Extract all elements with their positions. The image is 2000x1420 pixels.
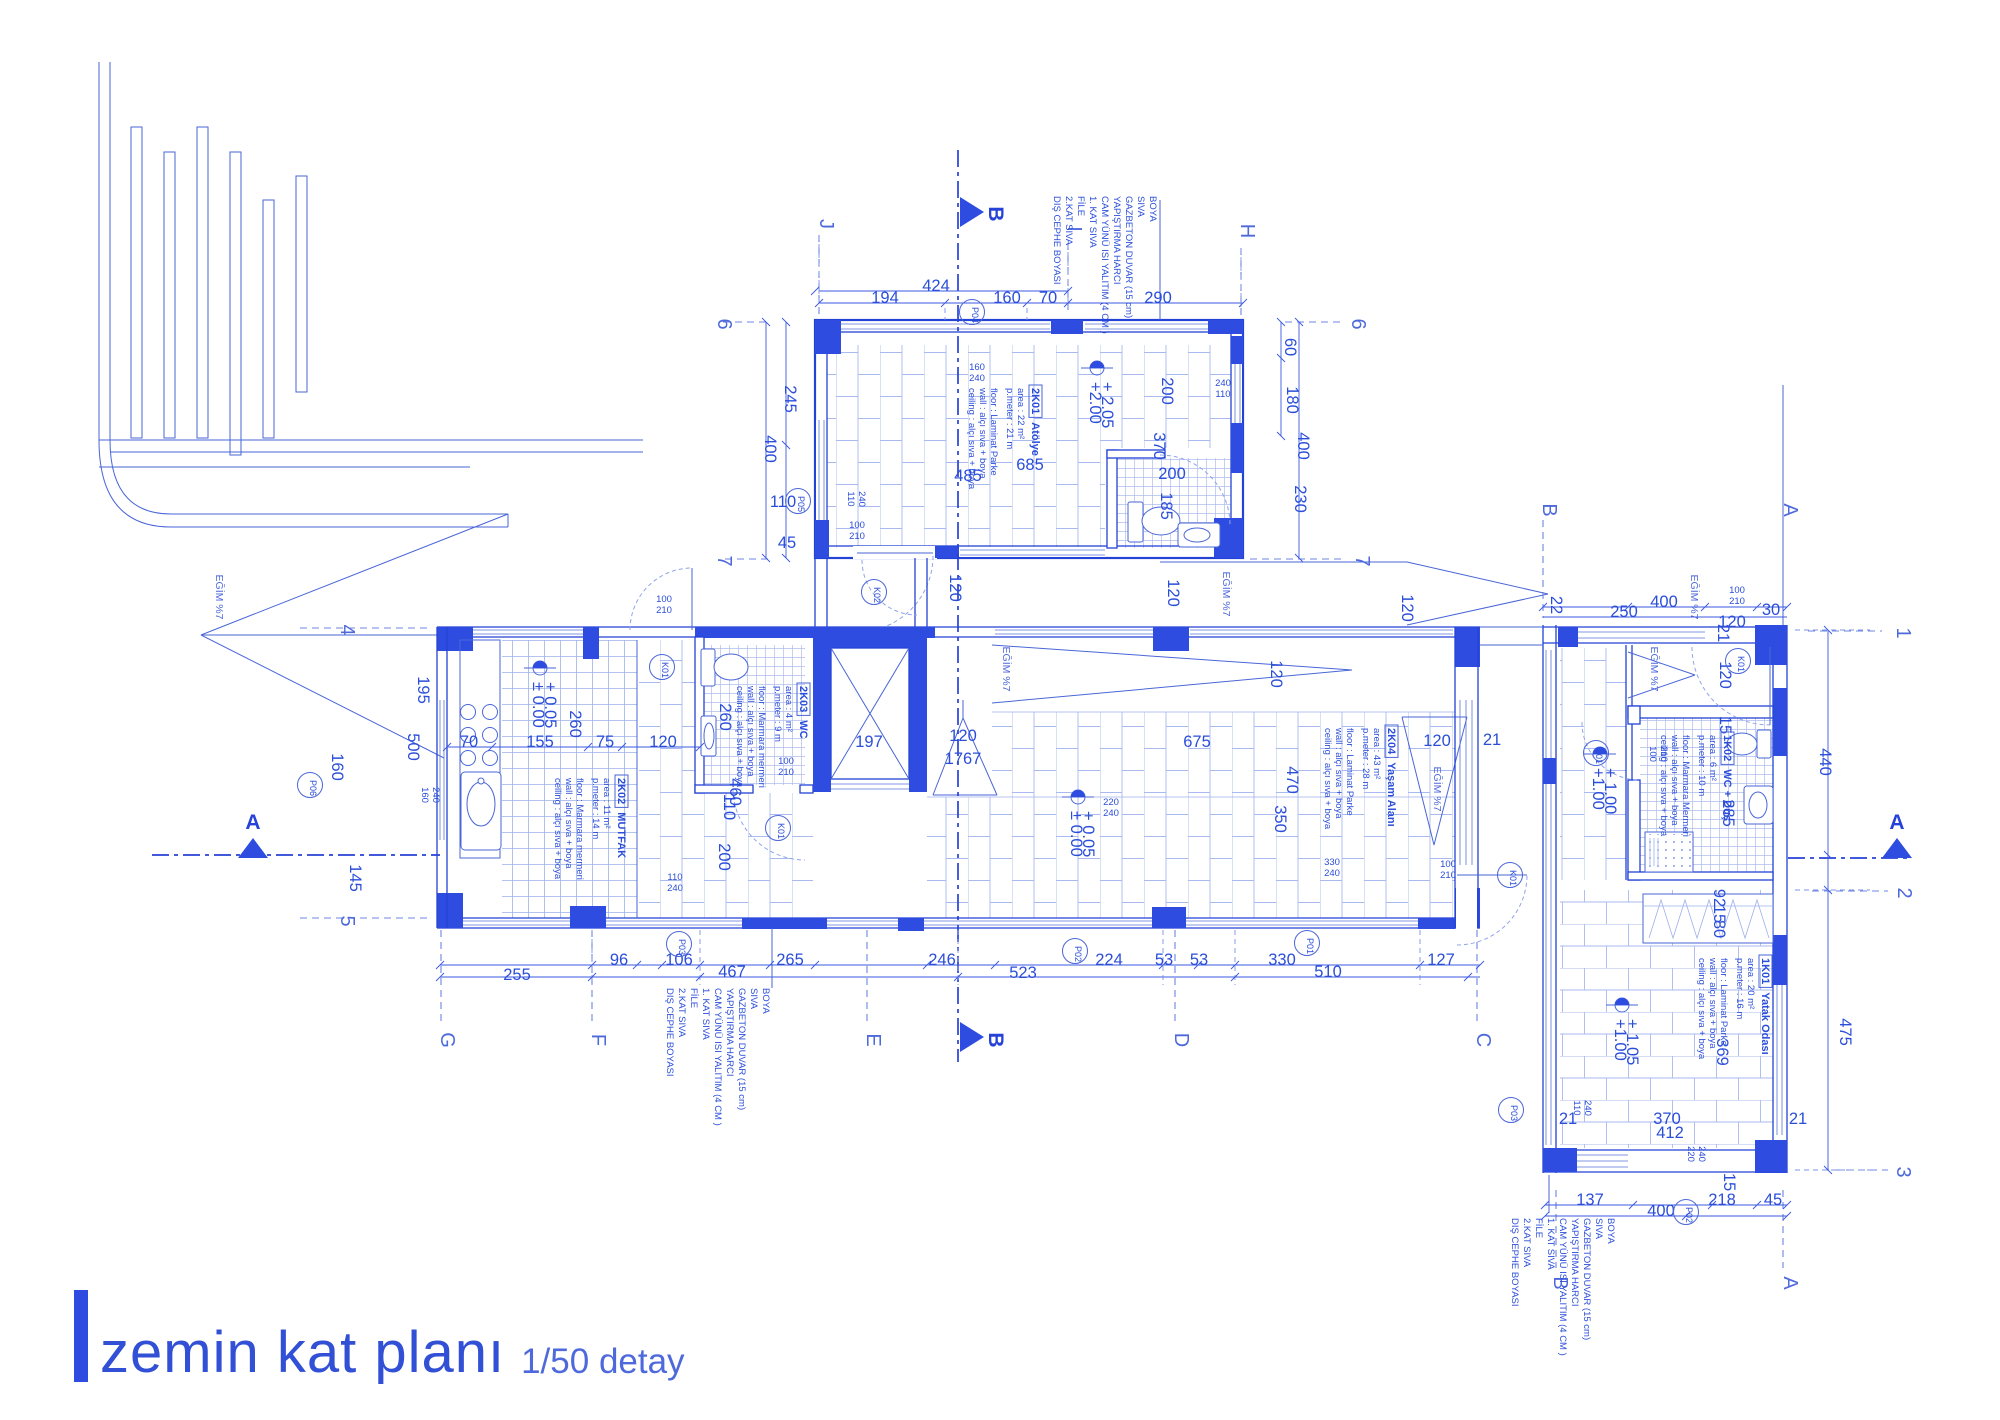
dimension-label: 500: [404, 733, 422, 761]
wall-note-line: GAZBETON DUVAR (15 cm): [1123, 196, 1134, 318]
wall-note-line: CAM YÜNÜ ISI YALITIM (4 CM ): [712, 988, 723, 1126]
wall-note-line: 1. KAT SIVA: [1545, 1218, 1556, 1270]
room-attr-line: p.meter : 28 m: [1360, 728, 1371, 789]
dimension-label: 200: [1158, 465, 1186, 483]
floor-plan-canvas: 4241941607029048568520037020018524540011…: [0, 0, 2000, 1420]
dimension-label: 240: [667, 883, 683, 894]
dimension-label: 224: [1095, 951, 1123, 969]
dimension-label: 194: [871, 289, 899, 307]
grid-label: H: [1236, 224, 1258, 238]
grid-label: G: [436, 1032, 458, 1048]
wall-note-line: 2.KAT SIVA: [676, 988, 687, 1038]
dimension-label: 160: [419, 787, 430, 803]
wall-note-line: FİLE: [688, 988, 699, 1008]
dimension-label: 370: [1150, 432, 1168, 460]
dimension-label: 330: [1324, 857, 1340, 868]
dimension-label: 45: [1764, 1191, 1782, 1209]
grid-label: 3: [1892, 1166, 1914, 1177]
dimension-label: 21: [1789, 1110, 1807, 1128]
grid-label: E: [862, 1033, 884, 1046]
opening-tag: K02: [872, 587, 882, 603]
opening-tag: K01: [660, 662, 670, 678]
room-attr-line: wall : alçı sıva + boya: [977, 387, 988, 479]
section-label: A: [245, 811, 260, 834]
grid-label: A: [1779, 503, 1801, 517]
room-code-name: 1K02WC + Duş: [1721, 735, 1733, 821]
dimension-label: 70: [460, 733, 478, 751]
grid-label: A: [1779, 1276, 1801, 1290]
grid-label: B: [1538, 503, 1560, 516]
dimension-label: 240: [1215, 378, 1231, 389]
dimension-label: 220: [1103, 797, 1119, 808]
room-code-name: 2K01Atölye: [1029, 388, 1041, 456]
wall-note-line: GAZBETON DUVAR (15 cm): [736, 988, 747, 1110]
dimension-label: 246: [928, 951, 956, 969]
dimension-label: 330: [1268, 951, 1296, 969]
dimension-label: 15: [1720, 1173, 1738, 1191]
dimension-label: 250: [1610, 603, 1638, 621]
grid-label: 5: [336, 915, 358, 926]
wall-note-line: 2.KAT SIVA: [1063, 196, 1074, 246]
section-b-arrow-bottom: [960, 1022, 984, 1052]
wall-note-line: DIŞ CEPHE BOYASI: [1051, 196, 1062, 285]
room-attr-line: floor : Laminat Parke: [1718, 958, 1729, 1046]
opening-tag: P02: [1684, 1207, 1694, 1223]
wall-note-line: SIVA: [748, 988, 759, 1010]
opening-tag: P01: [1305, 938, 1315, 954]
wall-note-line: BOYA: [760, 988, 771, 1014]
dimension-label: 100: [1647, 746, 1658, 762]
slope-label: EĞİM %7: [1688, 575, 1701, 620]
wall-note-line: DIŞ CEPHE BOYASI: [1509, 1218, 1520, 1307]
opening-tag: P06: [308, 780, 318, 796]
opening-tag: K01: [1508, 870, 1518, 886]
section-a-arrow-left: [238, 838, 268, 858]
dimension-label: 400: [1647, 1202, 1675, 1220]
dimension-label: 523: [1009, 964, 1037, 982]
dimension-label: 100: [1440, 859, 1456, 870]
room-attr-line: floor : Marmara mermeri: [756, 686, 767, 788]
dimension-label: 240: [969, 373, 985, 384]
dimension-label: 1767: [945, 750, 982, 768]
wall-note-line: YAPIŞTIRMA HARCI: [1569, 1218, 1580, 1307]
grid-label: 6: [1347, 318, 1369, 329]
room-attr-line: p.meter : 14 m: [590, 778, 601, 839]
room-attr-line: floor : Marmara mermeri: [574, 778, 585, 880]
wall-note-line: FİLE: [1533, 1218, 1544, 1238]
dimension-label: 110: [720, 794, 738, 820]
wall-note-line: BOYA: [1147, 196, 1158, 222]
dimension-label: 100: [849, 520, 865, 531]
dimension-label: 120: [949, 727, 977, 745]
opening-tag: K01: [1736, 656, 1746, 672]
room-attr-line: ceiling : alçı sıva + boya: [734, 686, 745, 788]
wall-note-line: FİLE: [1075, 196, 1086, 216]
room-attr-line: ceiling : alçı sıva + boya: [1322, 728, 1333, 830]
floor-plan-page: 4241941607029048568520037020018524540011…: [0, 0, 2000, 1420]
room-attr-line: ceiling : alçı sıva + boya: [1658, 735, 1669, 837]
section-a-arrow-right: [1882, 838, 1912, 858]
grid-label: C: [1472, 1033, 1494, 1047]
dimension-label: 96: [610, 951, 628, 969]
slope-label: EĞİM %7: [1431, 767, 1444, 812]
grid-label: D: [1170, 1033, 1192, 1047]
wall-note-line: SIVA: [1135, 196, 1146, 218]
room-code-name: 1K01Yatak Odası: [1759, 958, 1771, 1055]
dimension-label: 160: [969, 362, 985, 373]
slope-label: EĞİM %7: [1220, 572, 1233, 617]
slope-label: EĞİM %7: [213, 575, 226, 620]
dimension-label: 200: [715, 843, 733, 871]
dimension-label: 440: [1816, 748, 1834, 776]
dimension-label: 400: [1294, 432, 1312, 460]
room-attr-line: wall : alçı sıva + boya: [745, 685, 756, 777]
wall-note-line: SIVA: [1593, 1218, 1604, 1240]
wall-note-line: CAM YÜNÜ ISI YALITIM (4 CM ): [1099, 196, 1110, 334]
title-accent-bar: [74, 1290, 88, 1382]
grid-label: 6: [713, 318, 735, 329]
dimension-label: 475: [1836, 1018, 1854, 1046]
room-attr-line: ceiling : alçı sıva + boya: [1696, 958, 1707, 1060]
room-attr-line: area : 43 m²: [1371, 728, 1382, 779]
dimension-label: 424: [922, 277, 950, 295]
dimension-label: 210: [656, 605, 672, 616]
room-attr-line: floor : Laminat Parke: [1344, 728, 1355, 816]
dimension-label: 467: [718, 963, 746, 981]
room-attr-line: wall : alçı sıva + boya: [1333, 727, 1344, 819]
room-attr-line: p.meter : 9 m: [772, 686, 783, 742]
room-code-name: 2K04Yaşam Alanı: [1385, 728, 1397, 827]
dimension-label: 510: [1314, 963, 1342, 981]
dimension-label: 185: [1157, 492, 1175, 520]
dimension-label: 53: [1155, 951, 1173, 969]
room-attr-line: ceiling : alçı sıva + boya: [966, 388, 977, 490]
drawing-title: zemin kat planı: [100, 1324, 505, 1382]
wall-note-line: CAM YÜNÜ ISI YALITIM (4 CM ): [1557, 1218, 1568, 1356]
dimension-label: 200: [1158, 377, 1176, 405]
room-attr-line: p.meter : 16 m: [1734, 958, 1745, 1019]
dimension-label: 75: [596, 733, 614, 751]
dimension-label: 120: [1716, 661, 1734, 689]
elevation-value: +1.00: [1589, 768, 1607, 810]
wall-note-line: BOYA: [1605, 1218, 1616, 1244]
grid-label: 7: [1351, 555, 1373, 566]
dimension-label: 240: [430, 787, 441, 803]
dimension-label: 230: [1291, 485, 1309, 513]
dimension-label: 155: [526, 733, 554, 751]
dimension-label: 240: [1582, 1100, 1593, 1116]
elevation-value: +1.00: [1611, 1019, 1629, 1061]
room-attr-line: area : 4 m²: [783, 686, 794, 732]
dimension-label: 218: [1708, 1191, 1736, 1209]
title-block: zemin kat planı 1/50 detay: [74, 1290, 685, 1382]
dimension-label: 100: [778, 756, 794, 767]
dimension-label: 60: [1281, 338, 1299, 356]
dimension-label: 240: [1696, 1146, 1707, 1162]
dimension-label: 100: [656, 594, 672, 605]
grid-label: F: [587, 1034, 609, 1046]
opening-tag: P05: [796, 496, 806, 512]
wall-note-line: 1. KAT SIVA: [1087, 196, 1098, 248]
dimension-label: 145: [346, 864, 364, 892]
dimension-label: 110: [770, 493, 796, 511]
dimension-label: 210: [1440, 870, 1456, 881]
room-attr-line: p.meter : 10 m: [1696, 735, 1707, 796]
grid-label: J: [815, 219, 837, 229]
section-label: A: [1889, 811, 1904, 834]
dimension-label: 675: [1183, 733, 1211, 751]
grid-label: 2: [1893, 887, 1915, 898]
dimension-label: 100: [1729, 585, 1745, 596]
room-attr-line: floor : Marmara Mermeri: [1680, 735, 1691, 837]
dimension-label: 120: [649, 733, 677, 751]
dimension-label: 45: [778, 534, 796, 552]
dimension-label: 22: [1547, 596, 1565, 614]
room-attr-line: floor : Laminat Parke: [988, 388, 999, 476]
dimension-label: 21: [1714, 624, 1732, 642]
dimension-label: 400: [1650, 593, 1678, 611]
section-b-arrow-top: [960, 197, 984, 227]
dimension-label: 350: [1271, 805, 1289, 833]
dimension-label: 240: [856, 491, 867, 507]
dimension-label: 260: [566, 710, 584, 738]
dimension-label: 120: [1423, 732, 1451, 750]
opening-tag: K01: [776, 823, 786, 839]
grid-label: 7: [713, 555, 735, 566]
dimension-label: 210: [778, 767, 794, 778]
room-attr-line: wall : alçı sıva + boya: [1707, 957, 1718, 1049]
dimension-label: 265: [776, 951, 804, 969]
dimension-label: 412: [1656, 1124, 1684, 1142]
grid-label: 1: [1892, 627, 1914, 638]
dimension-label: 110: [1571, 1100, 1582, 1115]
elevation-value: ± 0.00: [529, 682, 547, 728]
dimension-label: 245: [781, 385, 799, 413]
wall-note-line: 1. KAT SIVA: [700, 988, 711, 1040]
wall-note-line: 2.KAT SIVA: [1521, 1218, 1532, 1268]
opening-tag: P03: [1509, 1105, 1519, 1121]
wall-note-line: GAZBETON DUVAR (15 cm): [1581, 1218, 1592, 1340]
dimension-label: 255: [503, 966, 531, 984]
wall-note-line: DIŞ CEPHE BOYASI: [664, 988, 675, 1077]
grid-label: 4: [336, 624, 358, 635]
wall-note-line: YAPIŞTIRMA HARCI: [724, 988, 735, 1077]
dimension-label: 110: [845, 491, 856, 506]
dimension-label: 120: [1267, 660, 1285, 688]
dimension-label: 240: [1103, 808, 1119, 819]
dimension-label: 400: [761, 435, 779, 463]
elevation-value: +2.00: [1086, 382, 1104, 424]
dimension-label: 120: [1164, 579, 1182, 607]
drawing-scale: 1/50 detay: [521, 1342, 684, 1382]
dimension-label: 127: [1427, 951, 1455, 969]
opening-tag: P02: [1073, 946, 1083, 962]
dimension-label: 120: [946, 574, 964, 602]
dimension-label: 120: [1398, 594, 1416, 622]
dimension-label: 53: [1190, 951, 1208, 969]
room-attr-line: area : 20 m²: [1745, 958, 1756, 1009]
dimension-label: 160: [993, 289, 1021, 307]
dimension-label: 15: [1716, 716, 1734, 734]
room-attr-line: area : 11 m²: [601, 778, 612, 829]
dimension-label: 110: [1215, 389, 1230, 400]
dimension-label: 180: [1283, 386, 1301, 414]
room-attr-line: p.meter : 21 m: [1004, 388, 1015, 449]
room-attr-line: area : 22 m²: [1015, 388, 1026, 439]
dimension-label: 195: [414, 676, 432, 704]
dimension-label: 220: [1685, 1146, 1696, 1162]
room-attr-line: area : 6 m²: [1707, 735, 1718, 781]
dimension-label: 210: [849, 531, 865, 542]
section-label: B: [984, 206, 1007, 221]
dimension-label: 160: [328, 753, 346, 781]
room-attr-line: wall : alçı sıva + boya: [1669, 734, 1680, 826]
dimension-label: 80: [1710, 920, 1728, 938]
room-code-name: 2K02MUTFAK: [615, 778, 627, 858]
dimension-label: 21: [1483, 731, 1501, 749]
section-label: B: [984, 1032, 1007, 1047]
opening-tag: P04: [970, 307, 980, 323]
dimension-label: 70: [1039, 289, 1057, 307]
slope-label: EĞİM %7: [1648, 647, 1661, 692]
slope-label: EĞİM %7: [1000, 647, 1013, 692]
dimension-label: 240: [1324, 868, 1340, 879]
elevation-value: ± 0.00: [1067, 811, 1085, 857]
room-attr-line: wall : alçı sıva + boya: [563, 777, 574, 869]
dimension-label: 137: [1576, 1191, 1604, 1209]
dimension-label: 30: [1762, 601, 1780, 619]
dimension-label: 470: [1283, 766, 1301, 794]
dimension-label: 110: [667, 872, 682, 883]
room-attr-line: ceiling : alçı sıva + boya: [552, 778, 563, 880]
opening-tag: P03: [677, 939, 687, 955]
dimension-label: 685: [1016, 456, 1044, 474]
wall-note-line: YAPIŞTIRMA HARCI: [1111, 196, 1122, 285]
dimension-label: 210: [1729, 596, 1745, 607]
dimension-label: 260: [716, 703, 734, 731]
dimension-label: 290: [1144, 289, 1172, 307]
dimension-label: 197: [855, 733, 883, 751]
